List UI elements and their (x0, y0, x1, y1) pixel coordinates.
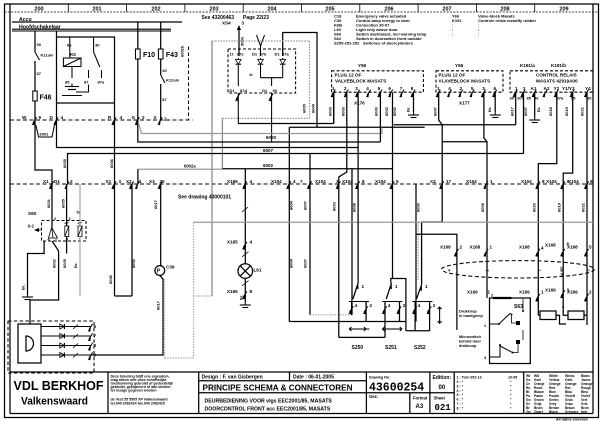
svg-text:30: 30 (37, 42, 42, 47)
svg-text:K12olv: K12olv (166, 78, 180, 83)
svg-text:Zw: Zw (526, 410, 531, 414)
svg-text:85: 85 (65, 80, 70, 85)
svg-text:Design : F. van Gisbergen: Design : F. van Gisbergen (202, 375, 263, 381)
svg-text:4 : *: 4 : * (457, 389, 464, 393)
svg-text:4: 4 (250, 179, 253, 184)
svg-text:200: 200 (34, 7, 43, 13)
svg-text:X165: X165 (227, 179, 238, 184)
svg-text:Y1/Y3: Y1/Y3 (562, 86, 575, 91)
svg-text:X168: X168 (545, 243, 556, 248)
svg-text:behind door: behind door (459, 340, 481, 344)
svg-text:30: 30 (162, 68, 167, 73)
svg-text:7 : *: 7 : * (457, 402, 464, 406)
svg-text:6002: 6002 (384, 106, 389, 116)
svg-text:in handgreep: in handgreep (459, 314, 484, 318)
svg-text:1: 1 (541, 290, 544, 295)
svg-text:K191/a: K191/a (520, 63, 535, 68)
svg-text:7: 7 (300, 179, 303, 184)
svg-text:87: 87 (37, 71, 42, 76)
svg-text:Schwarz: Schwarz (565, 410, 579, 414)
svg-text:208: 208 (500, 7, 509, 13)
svg-text:MASATS 42919A00: MASATS 42919A00 (536, 78, 578, 83)
svg-text:87b: 87b (260, 52, 267, 57)
svg-text:4: 4 (388, 303, 391, 308)
svg-text:6009: 6009 (480, 202, 485, 212)
svg-text:4: 4 (366, 86, 369, 91)
svg-text:S63: S63 (514, 304, 523, 310)
svg-text:Br.: Br. (73, 263, 78, 268)
svg-text:87c: 87c (237, 52, 244, 57)
svg-text:00: 00 (439, 385, 446, 391)
svg-text:X176: X176 (354, 101, 365, 106)
svg-text:1: 1 (395, 284, 398, 289)
svg-text:S250: S250 (352, 345, 364, 351)
svg-text:Br.: Br. (21, 285, 26, 290)
svg-text:Format: Format (413, 396, 428, 401)
svg-text:VLAVEBLOCK MASATS: VLAVEBLOCK MASATS (439, 78, 491, 83)
svg-text:87a: 87a (282, 52, 289, 57)
svg-text:X1: X1 (106, 179, 112, 184)
svg-text:X169: X169 (567, 290, 578, 295)
svg-text:4: 4 (541, 245, 544, 250)
svg-text:L61: L61 (254, 268, 262, 273)
svg-text:X3: X3 (149, 179, 155, 184)
svg-text:2: 2 (433, 303, 436, 308)
svg-text:10-05: 10-05 (508, 376, 517, 380)
svg-text:8: 8 (94, 343, 97, 348)
svg-text:PLUG 12 OF: PLUG 12 OF (335, 73, 362, 78)
svg-text:4: 4 (418, 303, 421, 308)
svg-text:3: 3 (355, 86, 358, 91)
svg-text:D1: D1 (54, 179, 60, 184)
svg-text:2: 2 (486, 269, 490, 271)
svg-text:Zwart: Zwart (534, 410, 544, 414)
svg-text:6005: 6005 (62, 158, 67, 168)
svg-text:6017: 6017 (510, 106, 515, 116)
svg-text:X4: X4 (430, 179, 436, 184)
svg-text:85: 85 (527, 96, 532, 101)
svg-text:All rights reserved: All rights reserved (556, 418, 588, 421)
svg-text:2: 2 (142, 115, 145, 120)
svg-text:VDL BERKHOF: VDL BERKHOF (14, 378, 104, 393)
svg-text:209: 209 (559, 7, 568, 13)
svg-text:6 : *: 6 : * (457, 398, 464, 402)
svg-text:1: 1 (425, 284, 428, 289)
svg-text:D1: D1 (275, 52, 281, 57)
svg-text:ter inzage gegeven worden: ter inzage gegeven worden (111, 389, 157, 393)
svg-text:7: 7 (400, 86, 403, 91)
svg-text:3: 3 (587, 269, 591, 271)
svg-text:Black: Black (549, 410, 558, 414)
svg-text:Edition:: Edition: (433, 375, 452, 381)
svg-text:204: 204 (267, 7, 277, 13)
svg-text:Date : 06-01-2005: Date : 06-01-2005 (293, 375, 334, 381)
svg-text:D1: D1 (262, 88, 268, 93)
svg-text:1: 1 (139, 179, 142, 184)
svg-text:43600254: 43600254 (369, 382, 424, 395)
svg-text:6001: 6001 (40, 132, 50, 137)
svg-text:S251: S251 (385, 345, 397, 351)
svg-text:X104: X104 (315, 179, 326, 184)
svg-text:X1: X1 (43, 179, 49, 184)
svg-text:7: 7 (94, 334, 97, 339)
svg-text:2: 2 (69, 217, 71, 221)
svg-text:5: 5 (589, 245, 592, 250)
svg-text:6005: 6005 (62, 258, 67, 268)
svg-text:87a: 87a (98, 80, 105, 85)
svg-text:6006: 6006 (108, 274, 113, 284)
svg-text:X168: X168 (519, 245, 530, 250)
svg-text:2 : *: 2 : * (457, 380, 464, 384)
svg-text:X104: X104 (375, 179, 386, 184)
svg-text:6019: 6019 (557, 202, 562, 212)
svg-text:6000: 6000 (374, 106, 379, 116)
svg-text:D1: D1 (252, 52, 258, 57)
svg-text:6018: 6018 (548, 106, 553, 116)
svg-text:87a: 87a (557, 96, 564, 101)
svg-text:206: 206 (384, 7, 393, 13)
svg-text:3: 3 (484, 356, 486, 360)
svg-text:X104: X104 (271, 179, 282, 184)
svg-text:6005: 6005 (302, 103, 307, 113)
svg-text:Drukknop: Drukknop (459, 310, 477, 314)
svg-text:20: 20 (160, 179, 166, 184)
svg-text:X168: X168 (470, 245, 481, 250)
svg-text:6017: 6017 (153, 199, 158, 209)
svg-text:6003: 6003 (328, 106, 333, 116)
svg-text:G: G (132, 115, 136, 120)
svg-text:87: 87 (162, 97, 167, 102)
svg-text:Valkenswaard: Valkenswaard (21, 396, 88, 408)
svg-text:X177: X177 (459, 101, 470, 106)
svg-text:X168: X168 (440, 245, 451, 250)
svg-text::: : (478, 32, 479, 37)
svg-text:Br.: Br. (406, 107, 411, 112)
svg-text:1 : Torn 652-13: 1 : Torn 652-13 (457, 376, 482, 380)
svg-text:87d: 87d (240, 88, 247, 93)
svg-text:X104: X104 (546, 179, 557, 184)
svg-text:6004: 6004 (289, 200, 294, 210)
svg-text:1: 1 (490, 245, 493, 250)
svg-text:2: 2 (403, 303, 406, 308)
svg-text:4: 4 (293, 179, 296, 184)
svg-text:2: 2 (589, 290, 592, 295)
svg-text:6003: 6003 (341, 106, 346, 116)
svg-text:021: 021 (435, 403, 452, 413)
svg-text:Sheet: Sheet (434, 396, 446, 401)
svg-text:6002a: 6002a (184, 163, 196, 168)
svg-text:Drawing No:: Drawing No: (369, 376, 390, 380)
svg-text:X169: X169 (519, 290, 530, 295)
svg-text:9: 9 (590, 179, 593, 184)
svg-text:X165: X165 (227, 240, 238, 245)
svg-text:8 : *: 8 : * (457, 406, 464, 410)
svg-text:K5: K5 (70, 52, 76, 57)
svg-text:6007: 6007 (303, 200, 308, 210)
svg-text:1: 1 (538, 269, 542, 271)
svg-text:K191/b: K191/b (551, 63, 566, 68)
svg-text:2: 2 (491, 294, 493, 298)
svg-text:W: W (22, 115, 27, 120)
svg-text:X104: X104 (568, 179, 579, 184)
svg-text:4L/BF: 4L/BF (560, 267, 564, 276)
svg-text:6020: 6020 (532, 202, 537, 212)
svg-text:8: 8 (362, 179, 365, 184)
svg-text:2: 2 (54, 217, 56, 221)
svg-text:5 : *: 5 : * (457, 393, 464, 397)
svg-text:2: 2 (460, 245, 463, 250)
svg-text:Br.: Br. (536, 107, 541, 112)
svg-text:6007: 6007 (433, 106, 438, 116)
svg-text:Microswitch: Microswitch (459, 335, 482, 339)
svg-text:9: 9 (39, 115, 42, 120)
svg-text:X169: X169 (545, 288, 556, 293)
svg-text:F10: F10 (143, 52, 155, 59)
svg-text:6002: 6002 (52, 258, 57, 268)
svg-text:4: 4 (61, 115, 64, 120)
svg-text:6017: 6017 (156, 300, 161, 310)
svg-text:2: 2 (370, 303, 373, 308)
svg-text:2: 2 (164, 116, 167, 121)
svg-text:K11olv: K11olv (41, 53, 55, 58)
svg-text:6007: 6007 (263, 148, 274, 153)
svg-text:201: 201 (92, 7, 101, 13)
svg-text:D1: D1 (230, 88, 236, 93)
svg-text:PLUG 12 OF: PLUG 12 OF (439, 73, 466, 78)
svg-text:S250-251-252: S250-251-252 (334, 41, 360, 46)
svg-text:VALVEBLOCK MASATS: VALVEBLOCK MASATS (335, 78, 386, 83)
svg-text:6003: 6003 (332, 201, 337, 211)
svg-text:1: 1 (55, 238, 57, 242)
svg-text:K191: K191 (452, 18, 462, 23)
svg-text:drukknop: drukknop (459, 344, 477, 348)
svg-text:3 : *: 3 : * (457, 384, 464, 388)
svg-text:6002b: 6002b (180, 45, 185, 57)
svg-text:4: 4 (355, 303, 358, 308)
svg-text:4: 4 (120, 115, 123, 120)
svg-text:Br.: Br. (239, 295, 244, 300)
svg-text:5: 5 (396, 179, 399, 184)
svg-text:6000: 6000 (266, 135, 277, 140)
svg-text:203: 203 (209, 7, 218, 13)
svg-text:6004: 6004 (289, 258, 294, 268)
svg-text:X104: X104 (466, 179, 477, 184)
svg-text:6008: 6008 (352, 202, 357, 212)
svg-text:C39: C39 (166, 265, 175, 270)
svg-text:5: 5 (378, 86, 381, 91)
svg-text:6: 6 (94, 324, 97, 329)
svg-text:6019: 6019 (564, 106, 569, 116)
svg-text:6021: 6021 (581, 202, 586, 212)
svg-text:F46: F46 (40, 95, 52, 102)
svg-text:Y66: Y66 (455, 63, 464, 68)
svg-text:PRINCIPE SCHEMA & CONNECTOREN: PRINCIPE SCHEMA & CONNECTOREN (203, 384, 353, 393)
svg-text:8: 8 (411, 86, 414, 91)
svg-text:6002: 6002 (263, 163, 274, 168)
svg-text:4: 4 (250, 240, 253, 245)
svg-text:1: 1 (490, 179, 493, 184)
svg-text:6021: 6021 (580, 106, 585, 116)
svg-text:X165: X165 (227, 289, 238, 294)
svg-text:See drawing 43000101: See drawing 43000101 (178, 195, 231, 201)
svg-text:A3: A3 (416, 404, 424, 410)
svg-text:X2: X2 (126, 179, 132, 184)
svg-text:6005: 6005 (61, 198, 66, 208)
svg-text:DOORCONTROL FRONT acc EEC2001/: DOORCONTROL FRONT acc EEC2001/85, MASATS (205, 407, 331, 413)
svg-text:6004: 6004 (311, 103, 316, 113)
svg-text:Y66: Y66 (358, 63, 367, 68)
svg-text::: : (452, 32, 453, 37)
svg-text:205: 205 (325, 7, 334, 13)
svg-text:tel.040 2082424 fax.040 208242: tel.040 2082424 fax.040 2082425 (111, 402, 165, 406)
svg-text:Controle relais metalify rubbe: Controle relais metalify rubber (478, 18, 536, 23)
svg-text:87: 87 (84, 80, 89, 85)
svg-text:Switches of doorcylinders: Switches of doorcylinders (363, 41, 414, 46)
svg-text:F43: F43 (166, 52, 178, 59)
svg-text:6007: 6007 (303, 258, 308, 268)
svg-text:DEURBEDIENING VOOR vlgs EEC200: DEURBEDIENING VOOR vlgs EEC2001/85, MASA… (205, 399, 333, 405)
svg-text:X169: X169 (467, 290, 478, 295)
svg-text:CONTROL RELAIS: CONTROL RELAIS (536, 73, 577, 78)
svg-text:XS4: XS4 (222, 21, 231, 26)
svg-text:S252: S252 (414, 345, 426, 351)
svg-text:6006: 6006 (109, 158, 114, 168)
svg-text:Gez:: Gez: (369, 394, 378, 399)
svg-text:6: 6 (388, 86, 391, 91)
svg-text:30: 30 (95, 43, 100, 48)
svg-text:207: 207 (442, 7, 451, 13)
svg-text:2: 2 (344, 86, 347, 91)
svg-text:1: 1 (484, 324, 486, 328)
svg-text:S60: S60 (28, 211, 37, 216)
svg-text:0-1: 0-1 (28, 224, 35, 229)
svg-text:X168: X168 (567, 245, 578, 250)
svg-text:30: 30 (587, 96, 592, 101)
svg-text:Noir: Noir (581, 410, 588, 414)
svg-text:202: 202 (151, 7, 160, 13)
svg-text:2: 2 (70, 179, 73, 184)
svg-text:8: 8 (250, 289, 253, 294)
svg-text:17: 17 (446, 179, 452, 184)
svg-text:1: 1 (362, 284, 365, 289)
svg-text:Br.: Br. (487, 107, 492, 112)
svg-text:8: 8 (542, 179, 545, 184)
svg-text:Page 22/23: Page 22/23 (243, 15, 269, 21)
svg-text:6001: 6001 (46, 198, 51, 208)
svg-text:X104: X104 (521, 179, 532, 184)
svg-text:3: 3 (242, 21, 245, 26)
svg-text:6000: 6000 (416, 202, 421, 212)
svg-text:30: 30 (273, 88, 278, 93)
svg-text:3: 3 (119, 179, 122, 184)
